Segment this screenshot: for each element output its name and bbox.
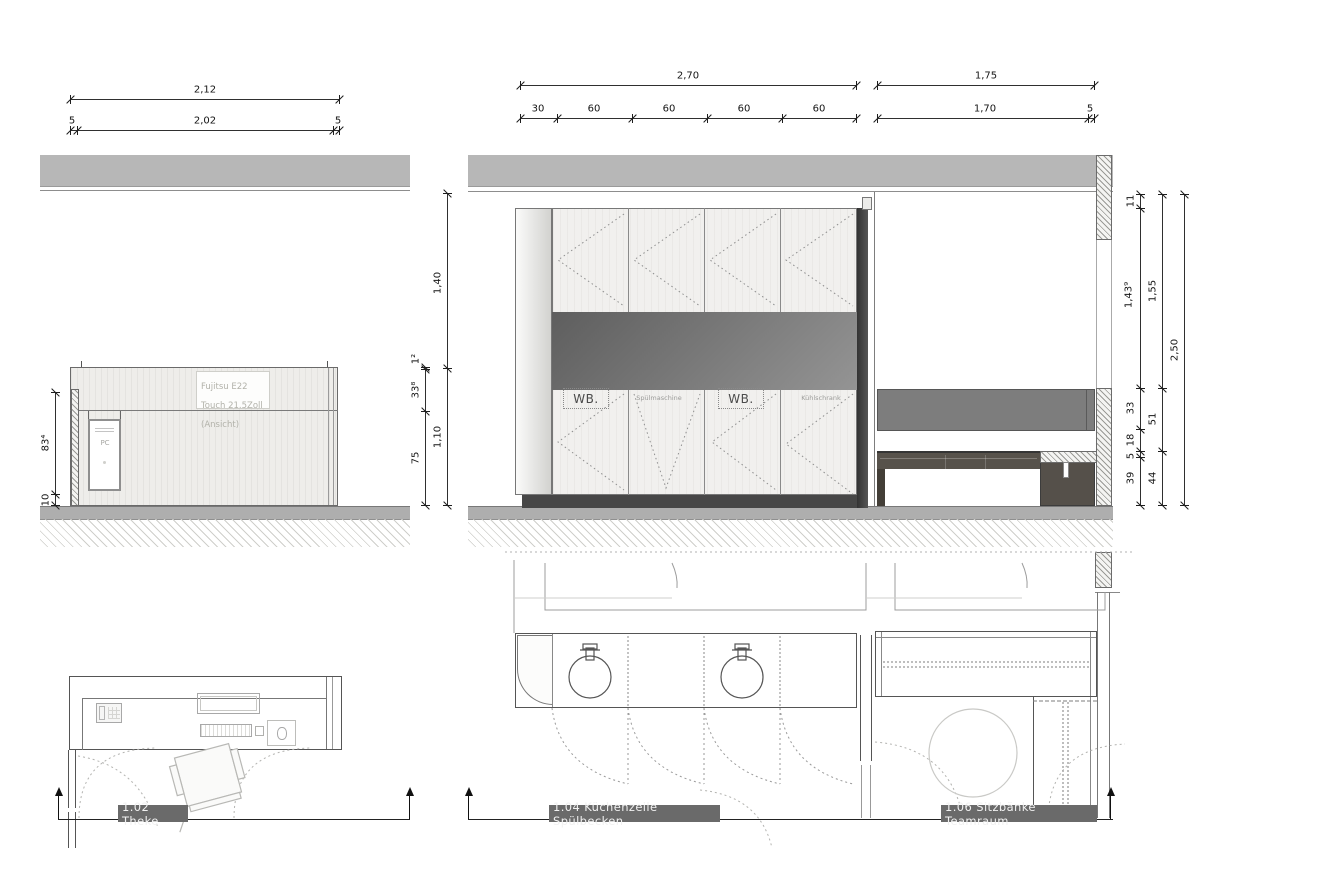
partition-wall-line [874, 192, 875, 506]
dim-kueche-seg-0: 30 [532, 104, 545, 115]
wall-hung-cabinet [877, 389, 1095, 431]
kitchen-side-panel [515, 208, 552, 495]
dim-mid-inner-line [425, 367, 426, 506]
bench-left-leg [877, 469, 885, 506]
dim-kueche-total: 2,70 [677, 71, 699, 82]
dim-mid-counter: 1,10 [433, 426, 444, 448]
fridge-label: Kühlschrank [801, 394, 841, 402]
counter-plan-end-joint [332, 677, 333, 749]
counter-corner-tick-right [327, 361, 328, 367]
dim-kueche-seg-4: 60 [813, 104, 826, 115]
door-joint-3-upper [780, 208, 781, 312]
bench-seat-highlight [880, 458, 1037, 459]
telephone-keypad [108, 707, 120, 719]
right-wall-edge-a [1096, 240, 1097, 388]
ceiling-slab-left [40, 155, 410, 187]
bench-seat-joint-2 [985, 455, 986, 469]
dim-sitzbank-parts-line [877, 118, 1095, 119]
counter-plan-inner-right [326, 677, 327, 749]
pc-mount-tick-right [120, 411, 121, 419]
right-wall-hatch-upper [1096, 155, 1112, 240]
bench-seat-joint-1 [945, 455, 946, 469]
section-label-theke: 1.02 Theke [118, 805, 188, 822]
dim-right-legs: 39 [1126, 472, 1137, 485]
dim-theke-total: 2,12 [194, 85, 216, 96]
pc-vent-line-1 [95, 428, 114, 429]
dim-theke-parts-line [70, 130, 340, 131]
table-plan [929, 709, 1017, 797]
pc-mount-tick-left [88, 411, 89, 419]
door-joint-1-lower [628, 390, 629, 495]
pc-unit: PC [88, 419, 121, 491]
bench-plan-column-left [1033, 697, 1034, 810]
right-wall-edge-b [1111, 240, 1112, 388]
floor-band-middle [468, 506, 1113, 520]
dim-kueche-seg-3: 60 [738, 104, 751, 115]
section-arrow-stem-1b [409, 795, 410, 819]
dim-right2-mid: 51 [1148, 413, 1159, 426]
bench-storage-box [1040, 451, 1095, 506]
dim-kueche-segments-line [520, 118, 857, 119]
kitchen-counter-plan [515, 633, 857, 708]
section-label-kueche-text: 1.04 Küchenzeile Spülbecken [553, 800, 716, 828]
dim-sitzbank-total-line [877, 85, 1095, 86]
bench-seat-board [877, 451, 1040, 469]
washbasin-label-2-box: WB. [718, 388, 764, 409]
dim-mid-top: 1² [411, 354, 422, 364]
door-joint-2-upper [704, 208, 705, 312]
section-arrow-2b [1107, 787, 1115, 796]
dim-theke-pad-left: 5 [69, 116, 75, 127]
mousepad-plan [267, 720, 296, 746]
plan-upper-cabinet-outlines [514, 560, 1105, 633]
pc-vent-line-2 [95, 431, 114, 432]
plan-wall-far-right [1097, 592, 1110, 818]
phone-dock-plan [255, 726, 264, 736]
kitchen-right-end-strip [857, 208, 868, 508]
counter-right-joint-2 [333, 368, 334, 505]
dim-right-chain3-line [1184, 194, 1185, 506]
plan-wall-left-lower [68, 812, 76, 848]
kitchen-plinth [522, 495, 857, 508]
ceiling-slab-middle [468, 155, 1113, 187]
plan-right-wall-hatch [1095, 552, 1112, 588]
counter-corner-tick-left [81, 361, 82, 367]
section-arrow-stem-1a [58, 795, 59, 819]
architectural-drawing-sheet: Fujitsu E22 Touch 21.5Zoll (Ansicht) PC … [0, 0, 1320, 880]
bench-box-slot [1063, 462, 1069, 478]
dim-sitzbank-pad: 5 [1087, 104, 1093, 115]
dim-right-gap: 18 [1126, 434, 1137, 447]
door-joint-2-lower [704, 390, 705, 495]
kitchen-counter-end-joint [552, 634, 553, 707]
dim-right-seat: 5 [1126, 453, 1137, 459]
dim-theke-total-line [70, 99, 340, 100]
dim-sitzbank-inner: 1,70 [974, 104, 996, 115]
counter-plan-inner-left [82, 698, 83, 750]
dim-right-chain2-line [1162, 194, 1163, 506]
section-label-sitzbank: 1.06 Sitzbänke Teamraum [941, 805, 1097, 822]
floor-hatch-left [40, 519, 410, 547]
bench-plan-inner-left [881, 632, 882, 696]
floor-band-left [40, 506, 410, 520]
section-arrow-1a [55, 787, 63, 796]
dim-right-wall: 1,43⁹ [1124, 282, 1135, 308]
right-wall-hatch-lower [1096, 388, 1112, 506]
dim-theke-inner: 2,02 [194, 116, 216, 127]
section-arrow-stem-2a [468, 795, 469, 819]
section-line-theke [58, 819, 410, 820]
floor-hatch-middle [468, 519, 1113, 547]
dim-sitzbank-total: 1,75 [975, 71, 997, 82]
washbasin-label-2: WB. [728, 392, 753, 406]
monitor-plan [197, 693, 260, 714]
pc-label: PC [100, 439, 109, 447]
counter-side-panel-hatch [71, 389, 79, 506]
telephone-handset [99, 706, 105, 720]
dim-right-chain1-line [1140, 194, 1141, 506]
section-arrow-stem-2b [1110, 795, 1111, 819]
monitor-plan-inner [200, 696, 257, 711]
dim-theke-front: 83⁴ [41, 435, 52, 452]
section-label-sitzbank-text: 1.06 Sitzbänke Teamraum [945, 800, 1093, 828]
dim-mid-body: 75 [411, 452, 422, 465]
monitor-note-box: Fujitsu E22 Touch 21.5Zoll (Ansicht) [196, 371, 270, 409]
plan-partition-wall-lower [861, 765, 871, 818]
washbasin-label-1-box: WB. [563, 388, 609, 409]
dim-mid-countertop: 33⁸ [411, 382, 422, 399]
dim-mid-above: 1,40 [433, 272, 444, 294]
mouse-plan [277, 727, 287, 740]
keyboard-plan [200, 724, 252, 737]
dim-kueche-seg-1: 60 [588, 104, 601, 115]
dishwasher-label: Spülmaschine [636, 394, 682, 402]
bench-plan-inner-right [1090, 632, 1091, 696]
kitchen-niche-band [552, 312, 857, 390]
door-joint-1-upper [628, 208, 629, 312]
dim-right2-upper: 1,55 [1148, 280, 1159, 302]
dim-theke-front-line [55, 392, 56, 506]
section-arrow-1b [406, 787, 414, 796]
dim-right-soffit: 11 [1126, 195, 1137, 208]
ceiling-line-left [40, 190, 410, 191]
section-arrow-2a [465, 787, 473, 796]
dim-theke-pad-right: 5 [335, 116, 341, 127]
dim-theke-base: 10 [41, 494, 52, 507]
dim-mid-outer-line [447, 193, 448, 506]
pc-power-dot [103, 461, 106, 464]
sliding-track-detail [862, 197, 872, 210]
wall-cabinet-joint [1086, 390, 1087, 430]
bench-plan-inner-top [876, 637, 1096, 638]
dim-right-cabinet: 33 [1126, 402, 1137, 415]
door-joint-3-lower [780, 390, 781, 495]
telephone-plan [96, 703, 122, 723]
room-door-swing-arcs [78, 742, 1125, 848]
ceiling-line-middle [468, 191, 1113, 192]
washbasin-label-1: WB. [573, 392, 598, 406]
plan-partition-wall [860, 635, 872, 761]
kitchen-door-swing-arcs [552, 708, 853, 784]
counter-right-joint-1 [328, 368, 329, 505]
dim-kueche-seg-2: 60 [663, 104, 676, 115]
section-label-theke-text: 1.02 Theke [122, 800, 184, 828]
plan-wall-left-upper [68, 750, 76, 808]
dim-right3-total: 2,50 [1170, 339, 1181, 361]
dim-kueche-total-line [520, 85, 857, 86]
section-label-kueche: 1.04 Küchenzeile Spülbecken [549, 805, 720, 822]
bench-plan-column-right [1090, 697, 1091, 810]
bench-plan-top-run [875, 631, 1097, 697]
dim-right2-lower: 44 [1148, 472, 1159, 485]
